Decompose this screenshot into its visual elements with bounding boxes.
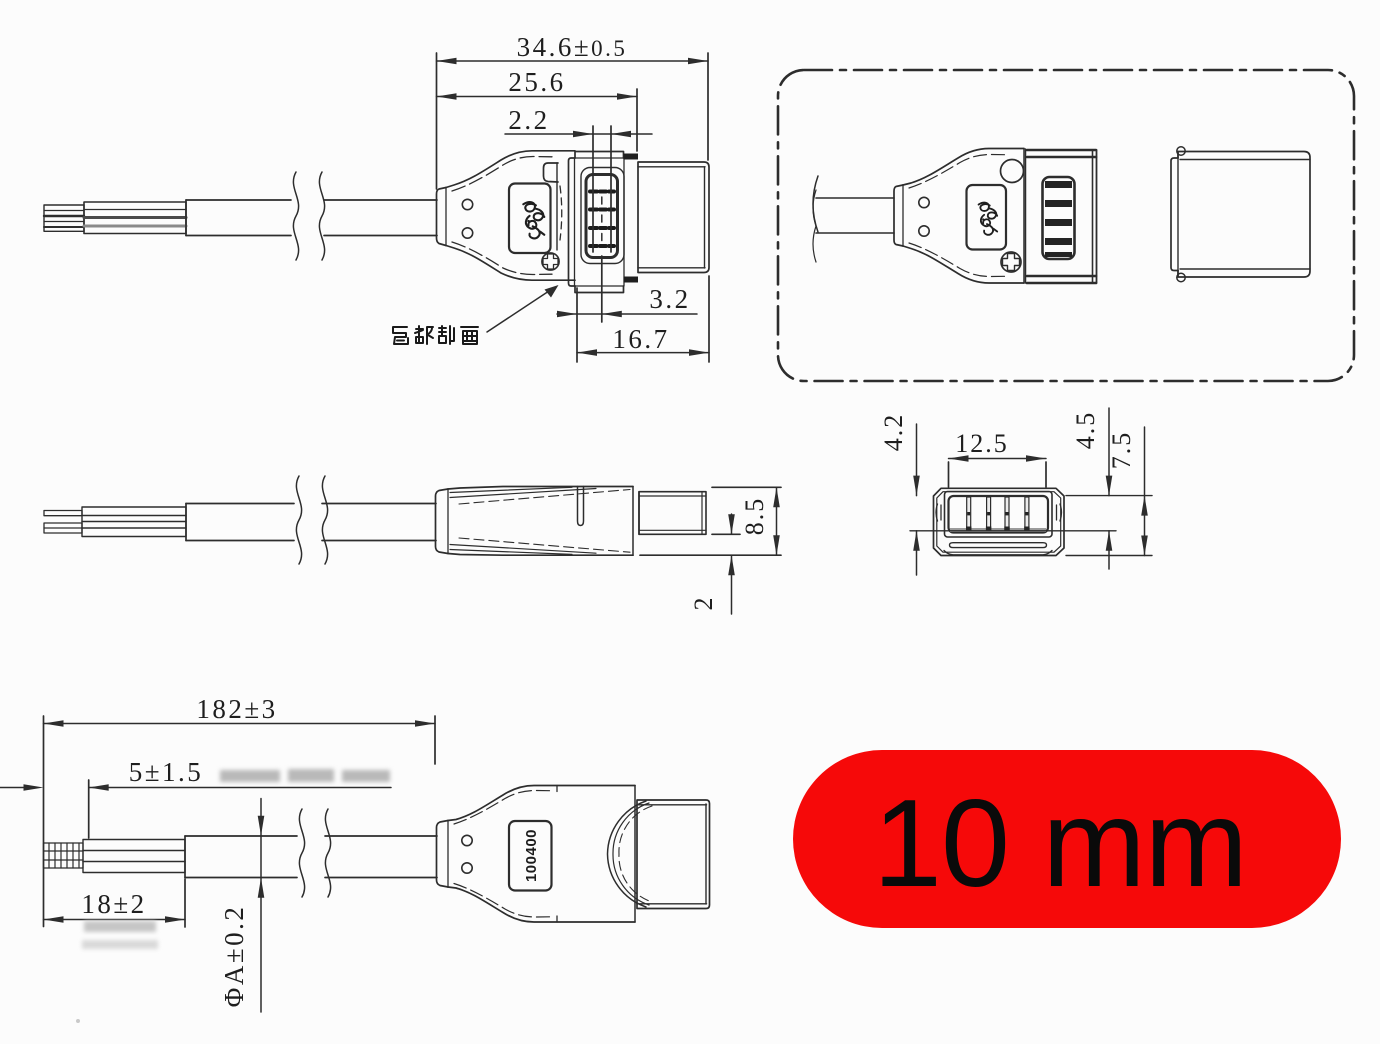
svg-text:8.5: 8.5: [740, 497, 769, 536]
svg-text:16.7: 16.7: [612, 324, 669, 354]
svg-text:12.5: 12.5: [955, 429, 1009, 458]
svg-text:10 mm: 10 mm: [873, 775, 1247, 913]
svg-text:2.2: 2.2: [508, 105, 549, 135]
svg-text:2: 2: [689, 596, 718, 611]
svg-text:5±1.5: 5±1.5: [129, 757, 204, 787]
svg-text:18±2: 18±2: [81, 889, 146, 919]
svg-text:100400: 100400: [523, 829, 540, 882]
svg-text:4.2: 4.2: [879, 413, 908, 452]
svg-text:3.2: 3.2: [649, 284, 690, 314]
svg-text:ΦA±0.2: ΦA±0.2: [219, 905, 249, 1008]
svg-text:7.5: 7.5: [1107, 431, 1136, 470]
svg-text:182±3: 182±3: [196, 694, 277, 724]
svg-text:34.6±0.5: 34.6±0.5: [517, 32, 628, 62]
svg-text:4.5: 4.5: [1071, 411, 1100, 450]
svg-text:25.6: 25.6: [508, 67, 565, 97]
